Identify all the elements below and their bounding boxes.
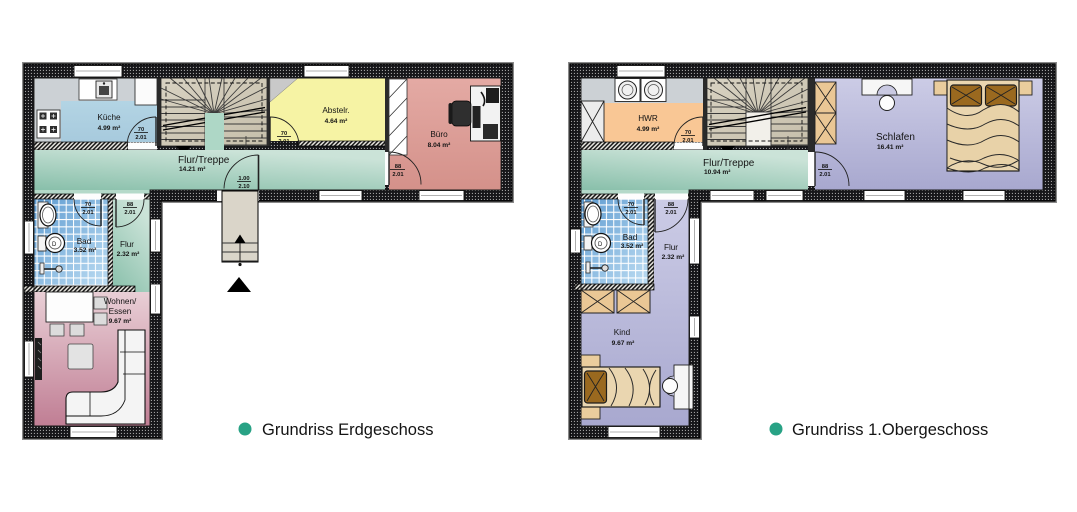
svg-text:2.01: 2.01 [82, 210, 94, 216]
svg-text:2.32 m²: 2.32 m² [117, 251, 141, 258]
svg-text:Küche: Küche [97, 113, 121, 122]
svg-text:Büro: Büro [430, 130, 448, 139]
svg-text:2.01: 2.01 [278, 139, 290, 145]
svg-text:Grundriss Erdgeschoss: Grundriss Erdgeschoss [262, 421, 434, 439]
svg-text:14.21 m²: 14.21 m² [179, 166, 206, 173]
svg-text:Wohnen/: Wohnen/ [104, 297, 137, 306]
svg-text:2.32 m²: 2.32 m² [662, 254, 686, 261]
svg-text:3.52 m²: 3.52 m² [74, 247, 98, 254]
svg-text:2.01: 2.01 [682, 138, 694, 144]
svg-text:2.01: 2.01 [665, 210, 677, 216]
svg-text:Flur/Treppe: Flur/Treppe [703, 158, 755, 169]
svg-text:2.01: 2.01 [124, 210, 136, 216]
svg-text:Kind: Kind [614, 328, 631, 337]
svg-text:16.41 m²: 16.41 m² [877, 144, 904, 151]
svg-text:D: D [52, 242, 57, 248]
svg-text:9.67 m²: 9.67 m² [612, 340, 636, 347]
svg-text:4.64 m²: 4.64 m² [325, 118, 349, 125]
svg-text:Abstelr.: Abstelr. [322, 106, 349, 115]
svg-text:2.01: 2.01 [135, 135, 147, 141]
svg-text:Bad: Bad [77, 237, 92, 246]
svg-text:9.67 m²: 9.67 m² [109, 318, 133, 325]
svg-text:2.01: 2.01 [625, 210, 637, 216]
svg-text:Essen: Essen [109, 307, 132, 316]
svg-text:2.01: 2.01 [819, 172, 831, 178]
svg-text:10.94 m²: 10.94 m² [704, 169, 731, 176]
svg-text:2.10: 2.10 [238, 184, 249, 190]
svg-text:4.99 m²: 4.99 m² [98, 125, 122, 132]
svg-text:D: D [598, 242, 603, 248]
svg-text:Schlafen: Schlafen [876, 132, 915, 143]
svg-text:Grundriss 1.Obergeschoss: Grundriss 1.Obergeschoss [792, 421, 988, 439]
svg-text:2.01: 2.01 [392, 172, 404, 178]
svg-text:Flur/Treppe: Flur/Treppe [178, 155, 230, 166]
svg-text:3.52 m²: 3.52 m² [621, 243, 645, 250]
svg-text:8.04 m²: 8.04 m² [428, 142, 452, 149]
svg-text:4.99 m²: 4.99 m² [637, 126, 661, 133]
svg-text:HWR: HWR [638, 114, 658, 123]
svg-text:Flur: Flur [120, 240, 134, 249]
svg-text:Bad: Bad [623, 233, 638, 242]
svg-text:Flur: Flur [664, 243, 678, 252]
